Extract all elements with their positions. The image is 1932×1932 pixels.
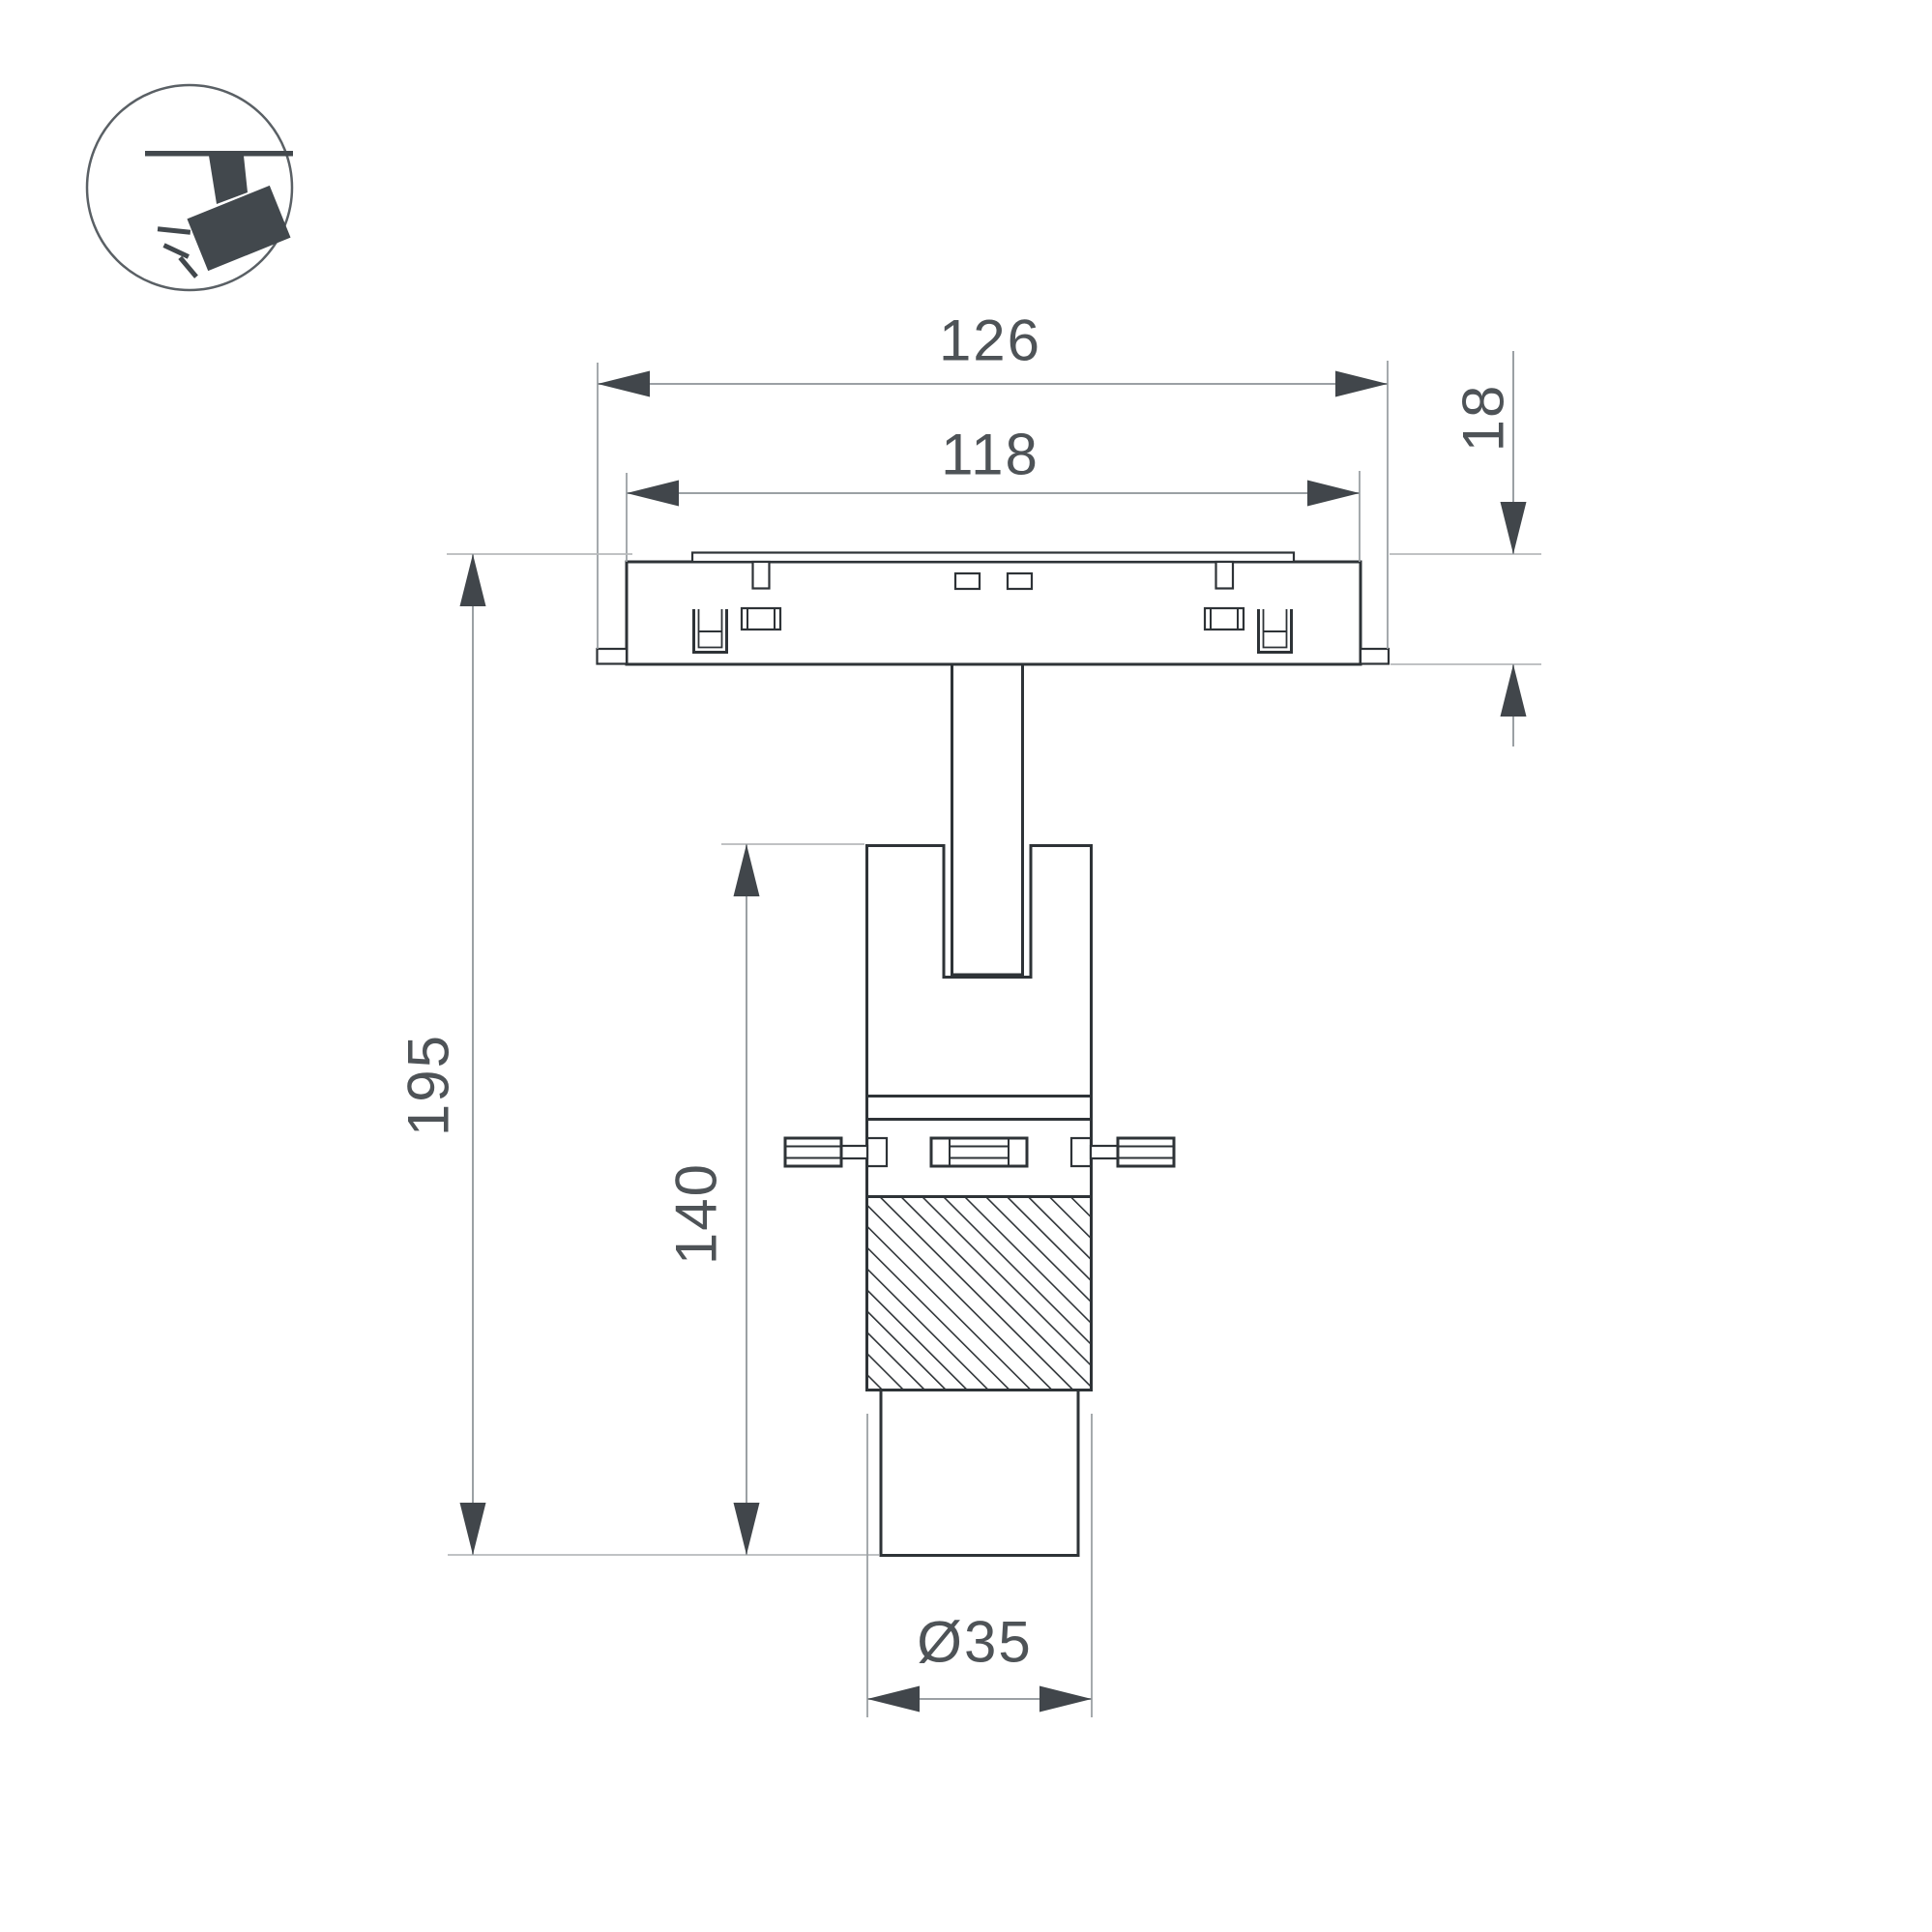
dimension-label-body-height: 140 [664,1162,729,1265]
ceiling-track-spotlight-icon [87,85,293,290]
terminal-block-right [1205,608,1244,629]
track-body [627,562,1361,664]
contact-tab-right [1216,562,1234,589]
arrowhead-top [1501,502,1527,554]
arrowhead-right [1307,481,1360,507]
icon-ceiling-bar [145,151,293,157]
arrowhead-left [627,481,679,507]
side-knob-left [785,1138,887,1166]
lens-barrel [881,1390,1078,1556]
dimension-body-height: 140 [664,844,865,1555]
arrowhead-left [867,1686,920,1712]
arrowhead-bottom [1501,664,1527,717]
arrowhead-right [1335,371,1388,397]
arrowhead-top [734,844,760,896]
dimension-label-outer-width: 126 [939,308,1041,373]
arrowhead-bottom [460,1503,486,1555]
knurled-section [867,1197,1092,1390]
dimension-label-track-depth: 18 [1451,384,1516,453]
dimension-overall-height: 195 [396,554,880,1555]
technical-drawing-canvas: 126 118 18 [0,0,1932,1932]
dimension-label-lens-diameter: Ø35 [917,1610,1032,1675]
dimension-track-depth: 18 [1390,351,1541,746]
dimension-inner-width: 118 [627,423,1360,563]
arrowhead-bottom [734,1503,760,1555]
dimension-label-overall-height: 195 [396,1034,461,1136]
center-contact-left [955,573,980,589]
mount-foot-right [1361,649,1389,664]
pivot-stem [952,664,1023,975]
track-adapter-module [598,553,1390,665]
arrowhead-top [460,554,486,606]
terminal-block-left [742,608,780,629]
arrowhead-right [1039,1686,1092,1712]
side-knob-right [1071,1138,1174,1166]
dimension-label-inner-width: 118 [941,423,1039,487]
arrowhead-left [598,371,650,397]
center-latch [931,1138,1027,1166]
track-top-plate [692,553,1294,563]
contact-tab-left [753,562,770,589]
icon-circle [87,85,292,290]
lamp-assembly [785,664,1174,1556]
center-contact-right [1008,573,1032,589]
ring-band [867,1097,1092,1120]
mount-foot-left [598,649,628,664]
